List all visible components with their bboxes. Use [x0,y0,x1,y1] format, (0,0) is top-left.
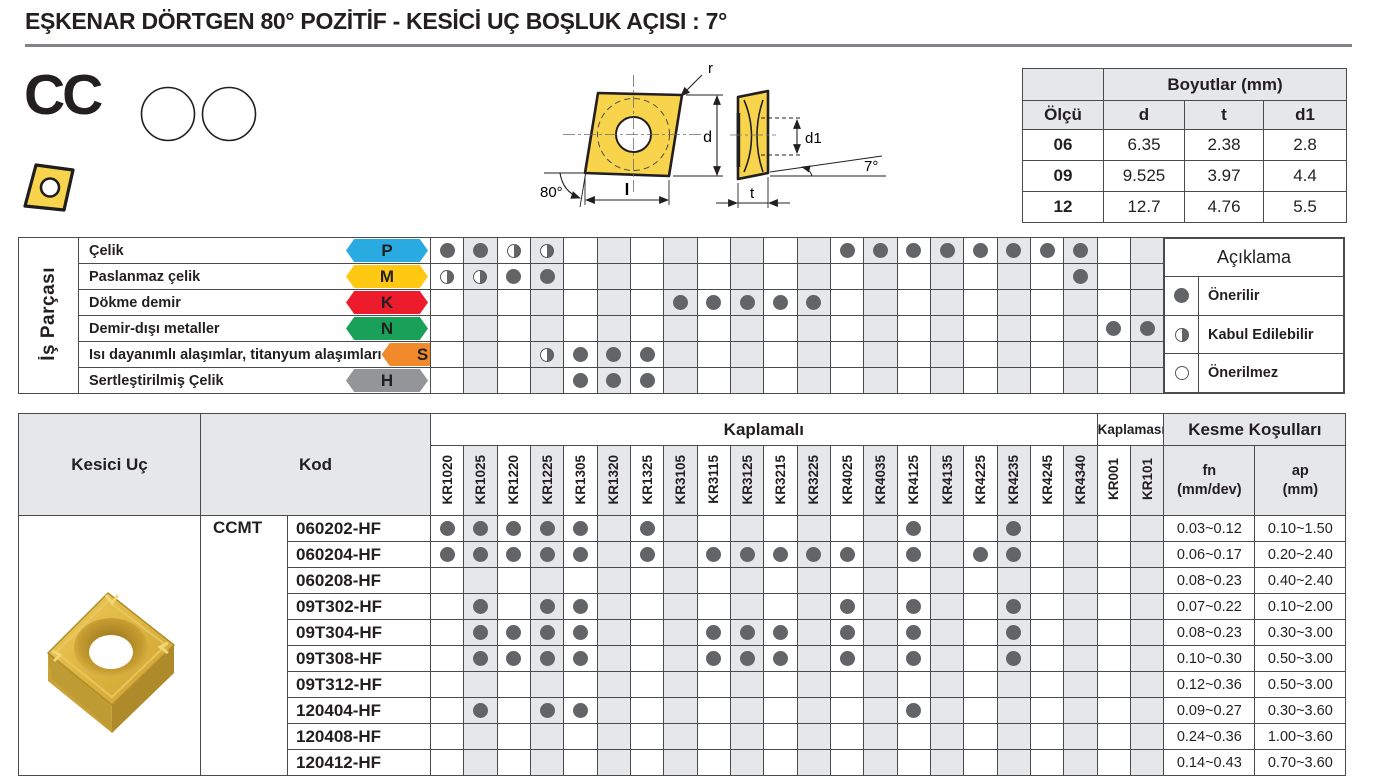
grade-dot-cell [431,646,464,672]
material-mark-cell [730,368,763,394]
grade-dot-cell [431,594,464,620]
grade-dot-cell [1130,750,1163,776]
material-mark-cell [964,290,997,316]
dims-group-header: Boyutlar (mm) [1104,69,1347,101]
material-mark-cell [497,368,530,394]
material-mark-cell [1064,290,1097,316]
grade-dot-cell [564,594,597,620]
insert-shape-code: CC [24,62,100,128]
mark-full-icon [540,625,555,640]
grade-dot-cell [864,646,897,672]
grade-dot-cell [997,646,1030,672]
grade-dot-cell [964,672,997,698]
material-mark-cell [664,264,697,290]
grade-dot-cell [497,750,530,776]
mark-half-icon [540,348,554,362]
catalog-page: EŞKENAR DÖRTGEN 80° POZİTİF - KESİCİ UÇ … [0,0,1379,779]
grade-column-header: KR1025 [464,446,497,516]
material-row: Sertleştirilmiş ÇelikH [19,368,1164,394]
grade-dot-cell [664,698,697,724]
grade-dot-cell [764,568,797,594]
material-mark-cell [1097,316,1130,342]
grade-dot-cell [464,646,497,672]
material-mark-cell [797,290,830,316]
mark-full-icon [573,347,588,362]
mark-full-icon [540,703,555,718]
mark-full-icon [640,373,655,388]
grade-dot-cell [697,750,730,776]
fn-value-cell: 0.10~0.30 [1164,646,1255,672]
grade-dot-cell [697,672,730,698]
mark-full-icon [840,243,855,258]
grade-dot-cell [664,672,697,698]
material-mark-cell [1097,238,1130,264]
grade-dot-cell [830,620,863,646]
material-mark-cell [964,368,997,394]
mark-full-icon [573,373,588,388]
material-mark-cell [730,316,763,342]
grade-dot-cell [964,620,997,646]
dims-col-d1: d1 [1264,101,1347,130]
material-mark-cell [630,368,663,394]
material-mark-cell [431,238,464,264]
grade-dot-cell [464,568,497,594]
mark-full-icon [640,347,655,362]
grade-dot-cell [730,646,763,672]
grade-dot-cell [964,646,997,672]
material-mark-cell [864,264,897,290]
mark-full-icon [1006,599,1021,614]
grade-dot-cell [997,516,1030,542]
mark-full-icon [506,651,521,666]
material-mark-cell [530,368,563,394]
mark-full-icon [740,625,755,640]
mark-full-icon [473,547,488,562]
grade-dot-cell [1064,698,1097,724]
grade-dot-cell [997,542,1030,568]
grade-dot-cell [497,568,530,594]
mark-full-icon [740,547,755,562]
grade-dot-cell [531,516,564,542]
ap-header-line1: ap [1255,462,1345,480]
material-mark-cell [1030,316,1063,342]
mark-full-icon [1040,243,1055,258]
grade-dot-cell [864,698,897,724]
legend-row-not-recommended: Önerilmez [1165,354,1343,392]
double-circle-icon [138,85,263,145]
grade-dot-cell [664,724,697,750]
mark-full-icon [540,651,555,666]
dimension-cell: 5.5 [1264,192,1347,223]
material-mark-cell [697,368,730,394]
mark-full-icon [840,651,855,666]
material-mark-cell [964,238,997,264]
mark-full-icon [440,243,455,258]
mark-full-icon [940,243,955,258]
material-mark-cell [1030,264,1063,290]
grade-column-header: KR4235 [997,446,1030,516]
grade-dot-cell [797,672,830,698]
grade-dot-cell [564,646,597,672]
material-mark-cell [830,368,863,394]
material-mark-cell [897,316,930,342]
grade-dot-cell [697,542,730,568]
material-mark-cell [1130,264,1163,290]
dimension-cell: 6.35 [1104,130,1185,161]
grade-dot-cell [1130,594,1163,620]
mark-full-icon [540,521,555,536]
grade-dot-cell [597,594,630,620]
material-mark-cell [1064,368,1097,394]
material-mark-cell [630,316,663,342]
material-mark-cell [664,290,697,316]
material-mark-cell [830,290,863,316]
material-table: İş ParçasıÇelikPPaslanmaz çelikMDökme de… [18,237,1164,394]
grade-dot-cell [630,620,663,646]
material-mark-cell [431,342,464,368]
mark-full-icon [506,521,521,536]
mark-full-icon [573,521,588,536]
fn-header-cell: fn (mm/dev) [1164,446,1255,516]
material-mark-cell [564,316,597,342]
grade-dot-cell [764,672,797,698]
material-mark-cell [864,238,897,264]
material-mark-cell [864,316,897,342]
mark-full-icon [1073,243,1088,258]
material-group-letter: H [381,371,393,391]
grade-dot-cell [830,750,863,776]
material-mark-cell [1064,238,1097,264]
grade-dot-cell [697,568,730,594]
material-mark-cell [431,368,464,394]
material-mark-cell [564,238,597,264]
grade-dot-cell [531,646,564,672]
mark-half-icon [540,244,554,258]
grade-dot-cell [930,516,963,542]
grade-dot-cell [497,516,530,542]
insert-photo-cell [19,516,201,776]
material-mark-cell [930,316,963,342]
material-name-cell: Isı dayanımlı alaşımlar, titanyum alaşım… [79,342,431,368]
grade-dot-cell [1097,516,1130,542]
grade-dot-cell [464,750,497,776]
l-dim-label: l [625,180,630,199]
mark-full-icon [673,295,688,310]
series-label-cell: CCMT [201,516,288,776]
grade-dot-cell [497,594,530,620]
grade-dot-cell [1030,516,1063,542]
grade-dot-cell [1097,698,1130,724]
material-mark-cell [764,316,797,342]
technical-drawing: r d l 80° d1 t [530,55,940,230]
grade-dot-cell [897,568,930,594]
material-mark-cell [797,342,830,368]
grade-dot-cell [997,750,1030,776]
fn-value-cell: 0.12~0.36 [1164,672,1255,698]
insert-selection-table: Kesici Uç Kod Kaplamalı Kaplamasız Kesme… [18,413,1346,776]
grade-dot-cell [464,516,497,542]
grade-dot-cell [1030,724,1063,750]
grade-dot-cell [497,542,530,568]
grade-dot-cell [997,620,1030,646]
grade-dot-cell [997,698,1030,724]
col-header-kesici-uc: Kesici Uç [19,414,201,516]
mark-full-icon [573,547,588,562]
grade-dot-cell [730,542,763,568]
material-group-letter: N [381,319,393,339]
grade-dot-cell [564,620,597,646]
material-mark-cell [530,342,563,368]
mark-full-icon [1006,651,1021,666]
grade-column-header: KR1320 [597,446,630,516]
mark-full-icon [840,599,855,614]
grade-dot-cell [797,646,830,672]
grade-column-header: KR4135 [930,446,963,516]
ap-value-cell: 0.10~1.50 [1255,516,1346,542]
grade-dot-cell [664,568,697,594]
grade-dot-cell [1097,724,1130,750]
grade-dot-cell [564,542,597,568]
grade-dot-cell [730,698,763,724]
mark-full-icon [706,547,721,562]
mark-full-icon [606,347,621,362]
grade-dot-cell [497,724,530,750]
material-mark-cell [530,316,563,342]
material-mark-cell [630,238,663,264]
material-mark-cell [497,290,530,316]
material-mark-cell [764,238,797,264]
material-mark-cell [864,368,897,394]
grade-dot-cell [930,620,963,646]
material-mark-cell [1130,316,1163,342]
material-mark-cell [730,264,763,290]
mark-full-icon [640,521,655,536]
mark-full-icon [540,269,555,284]
material-mark-cell [597,264,630,290]
grade-dot-cell [964,568,997,594]
grade-dot-cell [764,750,797,776]
material-mark-cell [464,264,497,290]
ap-header-line2: (mm) [1255,481,1345,499]
dimension-cell: 09 [1023,161,1104,192]
mark-full-icon [773,547,788,562]
mark-full-icon [473,703,488,718]
r-dim-label: r [708,60,713,77]
grade-dot-cell [930,594,963,620]
grade-dot-cell [564,724,597,750]
material-mark-cell [1097,290,1130,316]
grade-dot-cell [764,646,797,672]
mark-half-icon [473,270,487,284]
title-divider [25,44,1352,47]
material-name-label: Sertleştirilmiş Çelik [89,373,224,389]
grade-column-header: KR101 [1130,446,1163,516]
material-mark-cell [664,368,697,394]
grade-dot-cell [897,724,930,750]
dimension-cell: 4.4 [1264,161,1347,192]
mark-full-icon [1106,321,1121,336]
grade-dot-cell [497,646,530,672]
material-mark-cell [630,342,663,368]
dimension-cell: 9.525 [1104,161,1185,192]
grade-dot-cell [864,568,897,594]
material-mark-cell [497,316,530,342]
material-mark-cell [830,238,863,264]
grade-dot-cell [930,698,963,724]
grade-dot-cell [630,542,663,568]
dims-col-olcu: Ölçü [1023,101,1104,130]
grade-dot-cell [1097,568,1130,594]
ap-value-cell: 0.50~3.00 [1255,646,1346,672]
grade-dot-cell [764,542,797,568]
grade-dot-cell [697,646,730,672]
grade-dot-cell [830,542,863,568]
insert-code-cell: 09T308-HF [288,646,431,672]
mark-empty-icon [1165,354,1199,392]
material-mark-cell [730,342,763,368]
h-group-badge: H [346,369,428,392]
legend-label-acceptable: Kabul Edilebilir [1199,316,1343,354]
fn-value-cell: 0.03~0.12 [1164,516,1255,542]
material-mark-cell [630,264,663,290]
grade-dot-cell [1030,698,1063,724]
grade-dot-cell [764,698,797,724]
grade-dot-cell [630,516,663,542]
mark-half-icon [440,270,454,284]
material-row: Dökme demirK [19,290,1164,316]
mark-full-icon [1073,269,1088,284]
grade-dot-cell [1064,620,1097,646]
mark-full-icon [806,547,821,562]
material-mark-cell [1097,342,1130,368]
grade-dot-cell [431,672,464,698]
grade-dot-cell [797,750,830,776]
mark-full-icon [773,625,788,640]
grade-dot-cell [830,672,863,698]
grade-dot-cell [597,620,630,646]
material-mark-cell [1130,342,1163,368]
insert-photo [26,551,194,736]
grade-dot-cell [964,594,997,620]
material-mark-cell [597,316,630,342]
grade-dot-cell [664,516,697,542]
grade-dot-cell [597,646,630,672]
grade-dot-cell [997,568,1030,594]
mark-full-icon [906,651,921,666]
insert-code-cell: 120408-HF [288,724,431,750]
grade-dot-cell [431,620,464,646]
material-mark-cell [864,290,897,316]
p-group-badge: P [346,239,428,262]
legend-label-recommended: Önerilir [1199,277,1343,315]
grade-dot-cell [1064,542,1097,568]
mark-full-icon [906,703,921,718]
material-mark-cell [930,238,963,264]
grade-dot-cell [864,620,897,646]
grade-dot-cell [597,568,630,594]
grade-dot-cell [431,516,464,542]
insert-code-cell: 09T312-HF [288,672,431,698]
material-mark-cell [1097,368,1130,394]
grade-dot-cell [997,724,1030,750]
grade-dot-cell [1097,750,1130,776]
material-mark-cell [464,368,497,394]
ap-value-cell: 0.40~2.40 [1255,568,1346,594]
grade-column-header: KR1220 [497,446,530,516]
grade-dot-cell [930,646,963,672]
mark-full-icon [573,599,588,614]
m-group-badge: M [346,265,428,288]
material-mark-cell [664,238,697,264]
fn-value-cell: 0.07~0.22 [1164,594,1255,620]
material-mark-cell [664,316,697,342]
material-mark-cell [764,368,797,394]
material-name-cell: ÇelikP [79,238,431,264]
group-header-coated: Kaplamalı [431,414,1098,446]
grade-dot-cell [597,542,630,568]
grade-dot-cell [864,594,897,620]
material-mark-cell [564,368,597,394]
grade-column-header: KR4245 [1030,446,1063,516]
material-mark-cell [1030,342,1063,368]
material-mark-cell [630,290,663,316]
grade-dot-cell [564,750,597,776]
insert-code-cell: 09T302-HF [288,594,431,620]
grade-dot-cell [730,672,763,698]
grade-dot-cell [431,542,464,568]
mark-full-icon [706,651,721,666]
grade-dot-cell [864,750,897,776]
grade-dot-cell [730,594,763,620]
mark-full-icon [740,295,755,310]
material-mark-cell [1097,264,1130,290]
material-mark-cell [997,342,1030,368]
material-mark-cell [797,238,830,264]
grade-dot-cell [897,646,930,672]
material-mark-cell [830,342,863,368]
material-mark-cell [464,316,497,342]
mark-full-icon [1140,321,1155,336]
material-mark-cell [897,264,930,290]
grade-dot-cell [764,724,797,750]
grade-dot-cell [497,698,530,724]
fn-value-cell: 0.06~0.17 [1164,542,1255,568]
grade-dot-cell [464,594,497,620]
grade-dot-cell [764,594,797,620]
grade-dot-cell [1064,750,1097,776]
grade-dot-cell [464,542,497,568]
grade-column-header: KR4340 [1064,446,1097,516]
material-name-label: Paslanmaz çelik [89,269,200,285]
material-name-label: Dökme demir [89,295,181,311]
grade-dot-cell [764,516,797,542]
material-name-label: Demir-dışı metaller [89,321,220,337]
material-mark-cell [897,342,930,368]
grade-dot-cell [630,672,663,698]
material-mark-cell [464,342,497,368]
insert-code-cell: 120404-HF [288,698,431,724]
grade-dot-cell [431,698,464,724]
grade-dot-cell [1097,620,1130,646]
material-mark-cell [431,316,464,342]
grade-dot-cell [531,620,564,646]
material-row: İş ParçasıÇelikP [19,238,1164,264]
grade-dot-cell [597,516,630,542]
grade-column-header: KR3105 [664,446,697,516]
grade-dot-cell [930,568,963,594]
material-mark-cell [530,290,563,316]
material-mark-cell [564,290,597,316]
